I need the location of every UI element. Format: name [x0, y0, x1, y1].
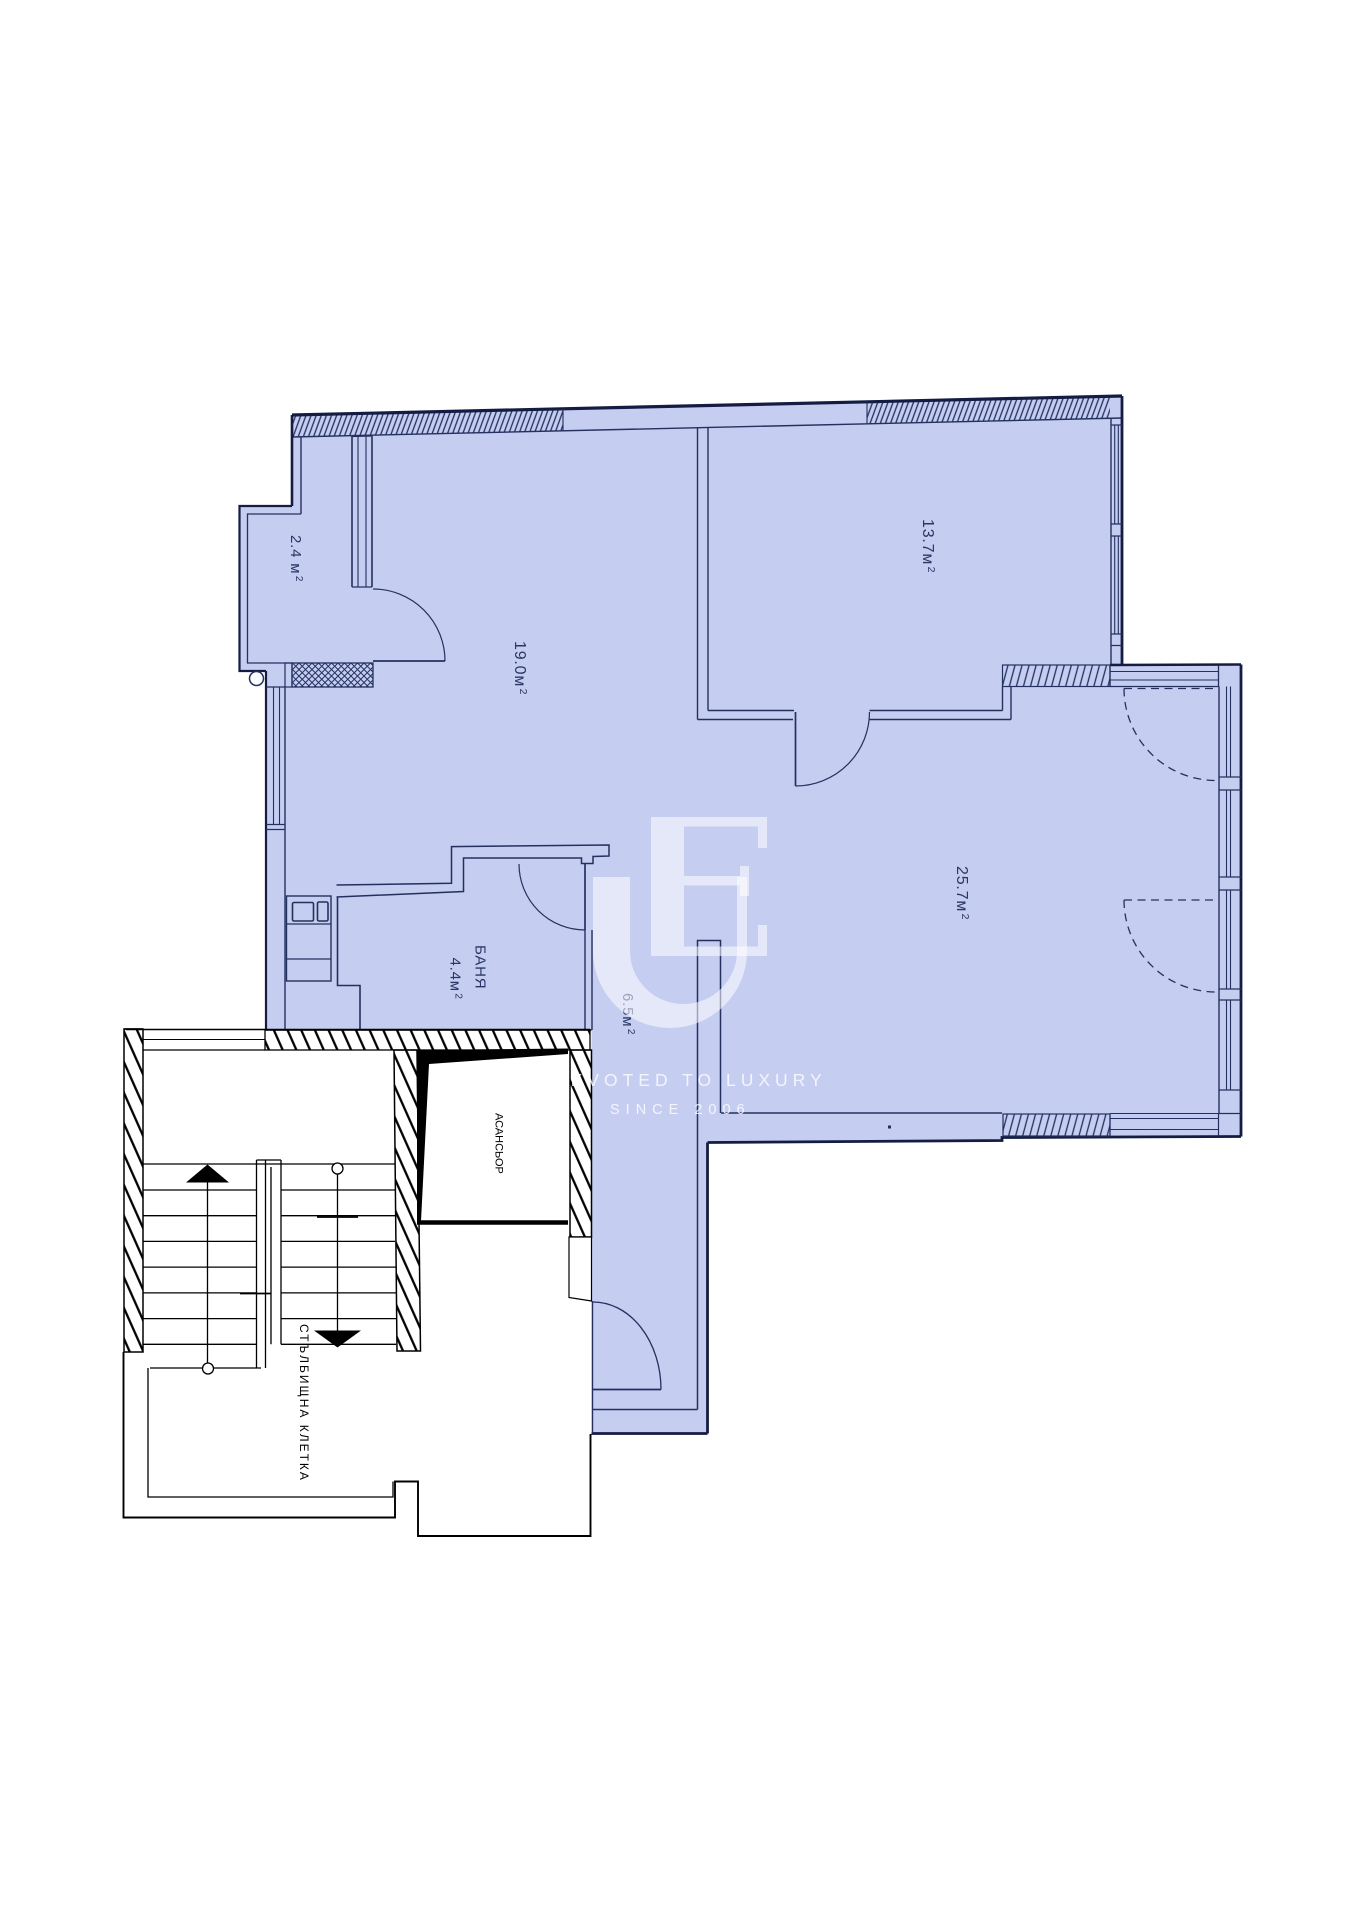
svg-text:БАНЯ: БАНЯ [472, 945, 489, 989]
svg-text:АСАНСЬОР: АСАНСЬОР [493, 1113, 505, 1174]
svg-text:СТЪЛБИЩНА КЛЕТКА: СТЪЛБИЩНА КЛЕТКА [297, 1324, 311, 1482]
svg-text:25.7м2: 25.7м2 [953, 866, 971, 920]
svg-text:19.0м2: 19.0м2 [511, 641, 529, 695]
svg-text:DEVOTED TO LUXURY: DEVOTED TO LUXURY [553, 1070, 827, 1090]
svg-text:13.7м2: 13.7м2 [919, 519, 937, 573]
svg-text:SINCE 2006: SINCE 2006 [610, 1102, 751, 1118]
